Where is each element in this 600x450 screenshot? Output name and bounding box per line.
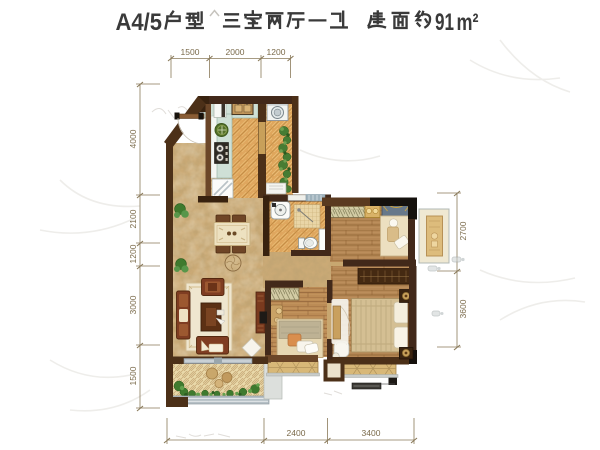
svg-text:2400: 2400 [287, 428, 306, 438]
svg-text:2700: 2700 [458, 221, 468, 240]
svg-text:91: 91 [435, 9, 454, 36]
svg-text:4000: 4000 [128, 129, 138, 148]
svg-text:1200: 1200 [128, 244, 138, 263]
svg-text:2100: 2100 [128, 209, 138, 228]
svg-text:3600: 3600 [458, 299, 468, 318]
svg-text:2000: 2000 [226, 47, 245, 57]
svg-text:1500: 1500 [181, 47, 200, 57]
svg-text:A4/5: A4/5 [116, 9, 163, 36]
svg-text:m²: m² [457, 9, 479, 35]
svg-text:1200: 1200 [267, 47, 286, 57]
svg-text:1500: 1500 [128, 366, 138, 385]
svg-text:3400: 3400 [362, 428, 381, 438]
svg-text:3000: 3000 [128, 295, 138, 314]
